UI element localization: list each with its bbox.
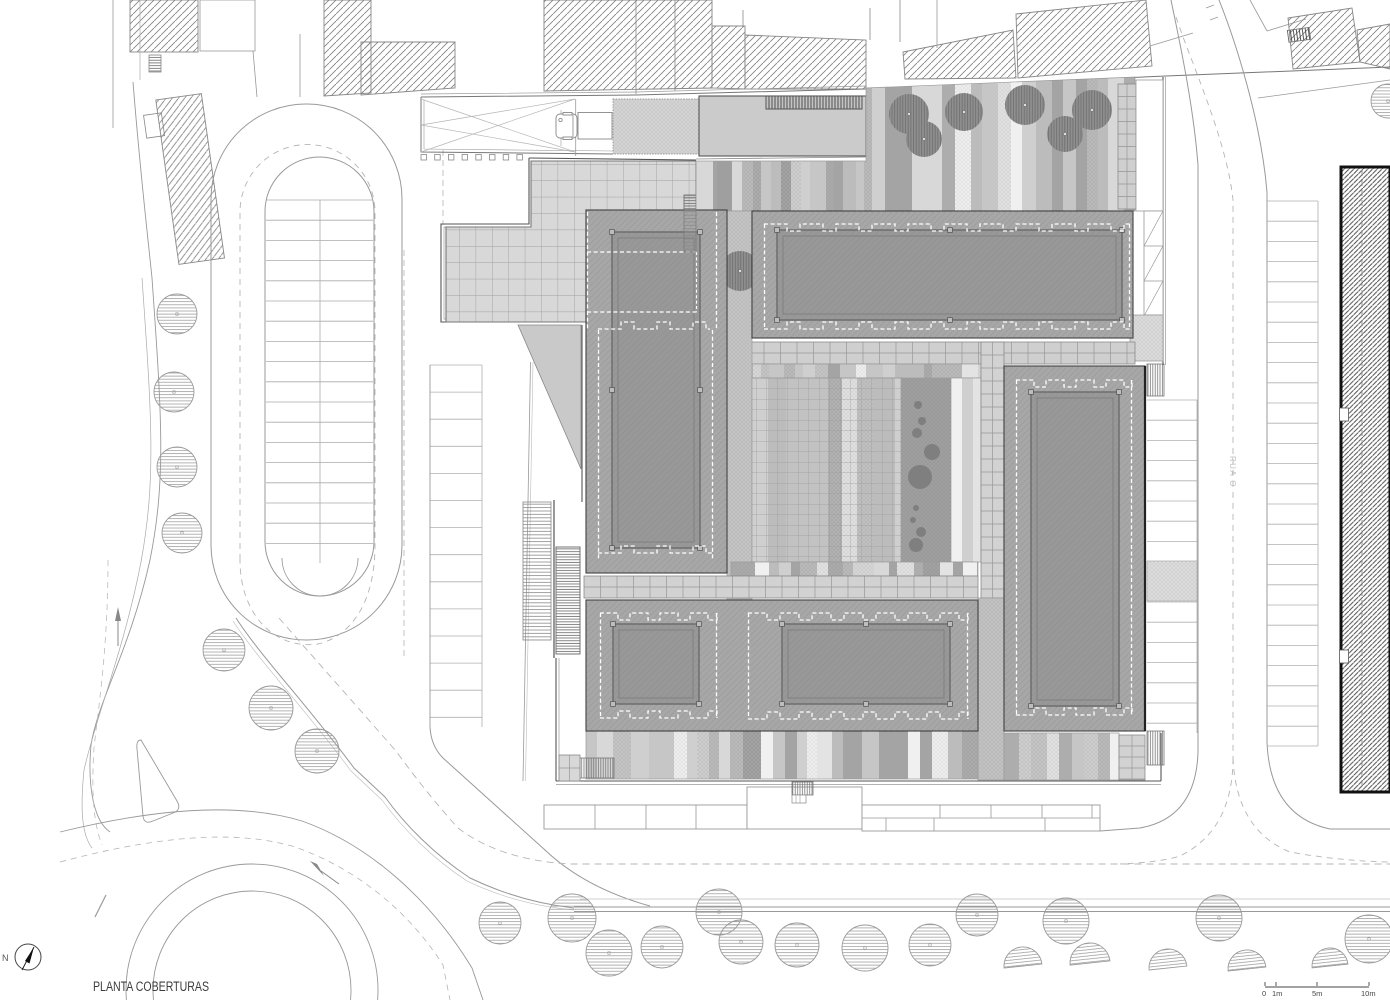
svg-text:0: 0 <box>1262 989 1266 998</box>
svg-text:1m: 1m <box>1272 989 1282 998</box>
svg-text:5m: 5m <box>1312 989 1322 998</box>
svg-text:RUA O: RUA O <box>1228 456 1237 488</box>
svg-text:N: N <box>2 953 9 963</box>
svg-text:10m: 10m <box>1361 989 1376 998</box>
svg-text:PLANTA COBERTURAS: PLANTA COBERTURAS <box>93 979 209 995</box>
